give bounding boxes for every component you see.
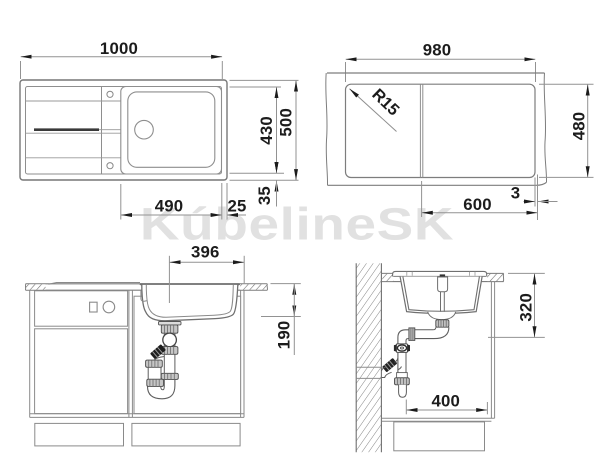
svg-text:480: 480 bbox=[570, 112, 589, 141]
svg-text:600: 600 bbox=[463, 195, 492, 214]
svg-text:1000: 1000 bbox=[100, 39, 138, 58]
svg-text:400: 400 bbox=[431, 391, 460, 410]
svg-text:980: 980 bbox=[423, 41, 452, 60]
svg-text:430: 430 bbox=[257, 116, 276, 145]
svg-text:35: 35 bbox=[255, 186, 274, 205]
svg-text:KúbelineSK: KúbelineSK bbox=[140, 199, 454, 249]
svg-text:396: 396 bbox=[191, 243, 220, 262]
svg-text:25: 25 bbox=[227, 197, 246, 216]
svg-text:500: 500 bbox=[277, 108, 296, 137]
svg-text:3: 3 bbox=[511, 184, 521, 203]
svg-text:490: 490 bbox=[155, 197, 184, 216]
svg-text:190: 190 bbox=[275, 321, 294, 350]
svg-text:320: 320 bbox=[517, 293, 536, 322]
